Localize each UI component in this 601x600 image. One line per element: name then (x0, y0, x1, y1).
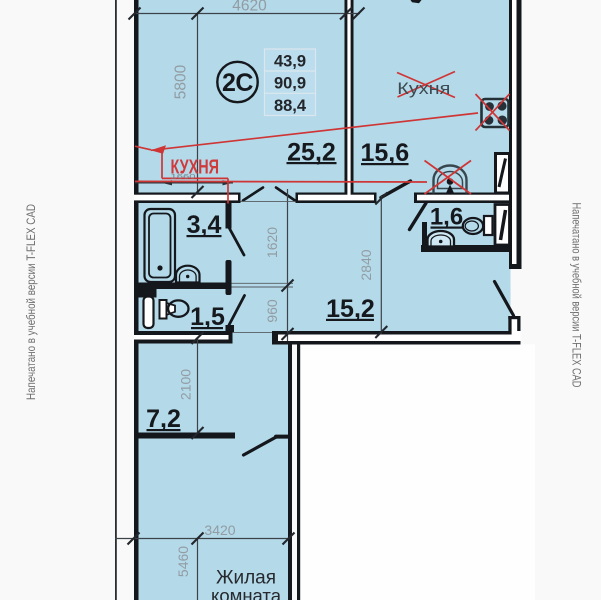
svg-text:2840: 2840 (358, 249, 374, 280)
svg-text:5800: 5800 (173, 64, 190, 99)
svg-text:комната: комната (211, 585, 282, 600)
svg-text:Напечатано в учебной версии T-: Напечатано в учебной версии T-FLEX CAD (24, 204, 38, 400)
svg-text:90,9: 90,9 (274, 75, 306, 93)
svg-text:960: 960 (264, 299, 280, 323)
svg-text:15,6: 15,6 (360, 139, 409, 167)
svg-text:1660: 1660 (171, 174, 197, 181)
svg-text:3420: 3420 (204, 522, 235, 538)
svg-text:Кухня: Кухня (397, 79, 450, 98)
svg-text:7,2: 7,2 (146, 405, 181, 433)
svg-text:2C: 2C (222, 69, 253, 97)
svg-text:43,9: 43,9 (274, 53, 306, 71)
svg-text:5460: 5460 (175, 546, 191, 577)
svg-text:3,4: 3,4 (187, 211, 222, 239)
svg-text:2100: 2100 (178, 369, 194, 400)
svg-text:Напечатано в учебной версии T-: Напечатано в учебной версии T-FLEX CAD (570, 203, 584, 388)
svg-text:4620: 4620 (232, 0, 267, 15)
svg-text:1,6: 1,6 (430, 204, 463, 231)
svg-text:1,5: 1,5 (190, 303, 225, 331)
svg-text:88,4: 88,4 (274, 97, 307, 115)
svg-text:1620: 1620 (264, 227, 280, 258)
